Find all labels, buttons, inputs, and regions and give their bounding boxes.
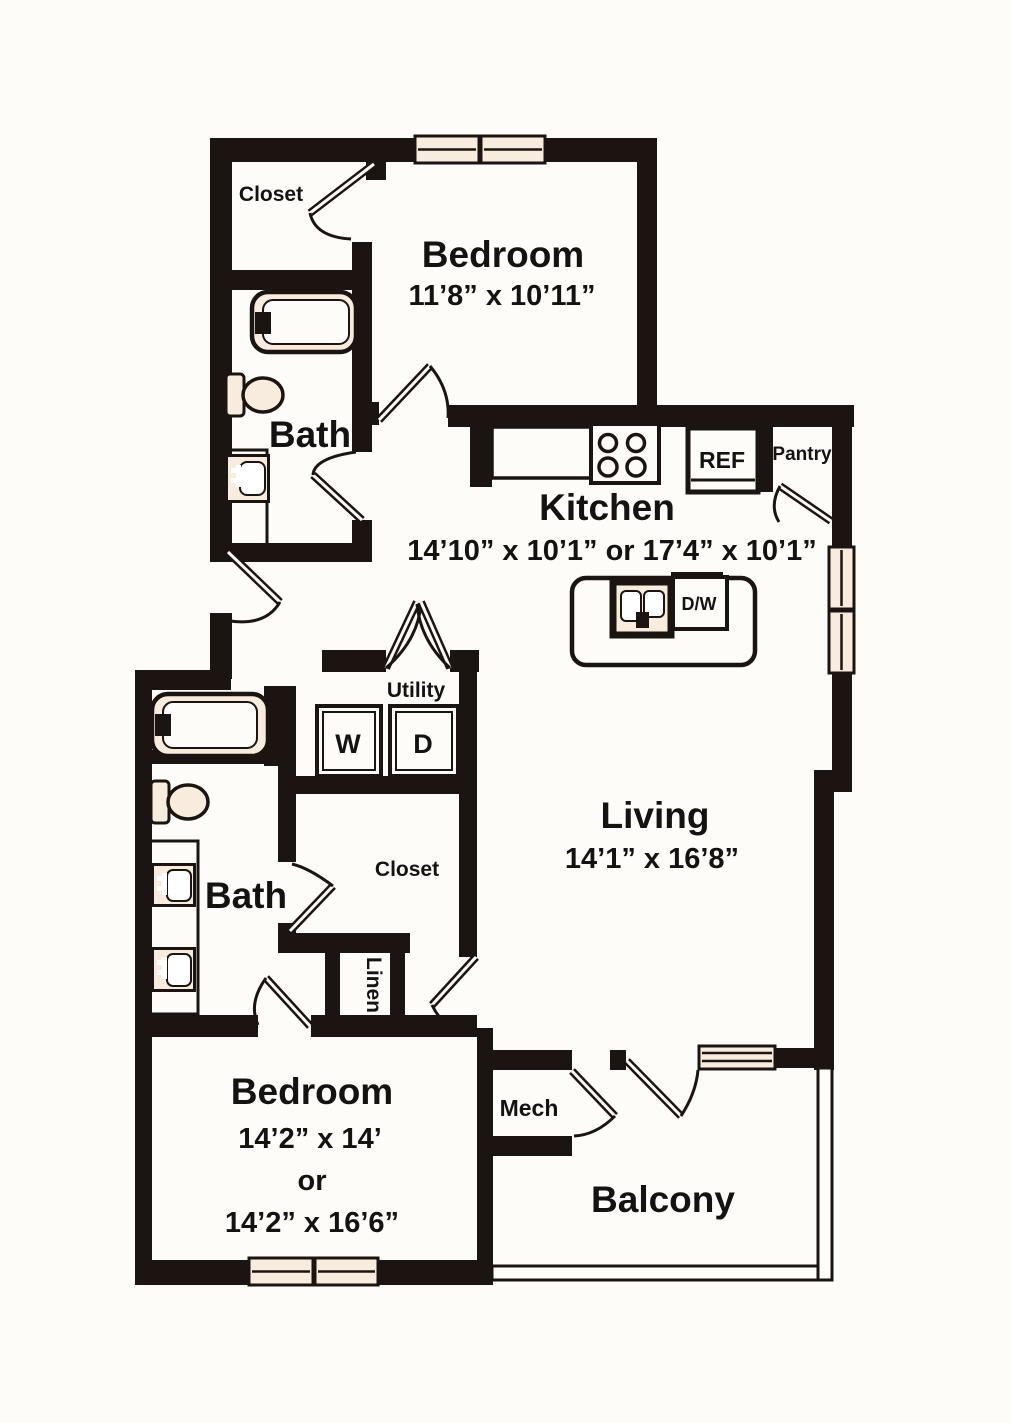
wall-segment [610,1050,626,1070]
wall-segment [210,138,419,162]
balcony-label: Balcony [591,1179,735,1220]
vanity-bottom [151,841,198,1014]
closet-top-door-swing [310,164,374,239]
closet-middle-label: Closet [375,858,439,881]
wall-segment [135,1260,253,1285]
mech-door-swing [572,1071,615,1136]
window-top-2 [481,136,545,163]
island-sink [613,582,671,635]
linen-label: Linen [362,957,385,1013]
window-right-1 [829,547,854,609]
stove [591,424,659,483]
bedroom-bottom-dims-primary: 14’2” x 14’ [238,1123,382,1155]
toilet-bottom [151,781,208,823]
window-bedroom2-1 [249,1258,313,1285]
kitchen-label: Kitchen [539,487,675,528]
utility-label: Utility [387,679,446,702]
wall-segment [459,650,477,957]
bedroom-bottom-dims-alternate: 14’2” x 16’6” [225,1207,399,1239]
balcony-door-swing [627,1061,698,1116]
bath-top-label: Bath [269,414,351,455]
window-top-1 [415,136,479,163]
wall-segment [278,686,296,862]
wall-segment [490,1136,572,1156]
bedroom-top-door-swing [379,366,448,420]
bathtub-top [252,292,356,352]
wall-segment [832,425,852,549]
bath-top-door-swing [313,452,362,520]
wall-segment [210,270,354,290]
window-bedroom2-2 [315,1258,378,1285]
floor-plan-drawing: REF D/W W D [0,0,1011,1423]
washer: W [317,706,381,776]
wall-segment [322,650,386,672]
hall-door-swing [228,552,280,622]
dryer-label: D [413,729,433,759]
wall-segment [135,670,152,1285]
toilet-top [226,374,283,416]
dishwasher-label: D/W [682,594,717,614]
bedroom-top-label: Bedroom [422,234,584,275]
bathtub-bottom [152,694,268,756]
refrigerator-label: REF [699,447,745,473]
wall-segment [152,1015,258,1037]
bedroom-bottom-door-swing [254,978,310,1026]
bedroom-bottom-label: Bedroom [231,1071,393,1112]
pantry-label: Pantry [772,444,832,465]
kitchen-dims: 14’10” x 10’1” or 17’4” x 10’1” [407,535,817,567]
bath-bottom-door-swing [290,864,333,931]
living-dims: 14’1” x 16’8” [565,843,739,875]
utility-double-door-swing [386,602,450,668]
wall-segment [210,613,232,679]
wall-segment [832,670,852,774]
living-label: Living [601,795,710,836]
bedroom-top-dims: 11’8” x 10’11” [408,280,595,312]
wall-segment [637,158,657,427]
wall-segment [814,790,834,1070]
window-right-2 [829,611,854,673]
floor-plan: REF D/W W D [0,0,1011,1423]
wall-segment [770,1048,834,1068]
wall-segment [814,770,852,792]
window-living [699,1046,775,1069]
pantry-door-swing [774,486,831,522]
closet-top-label: Closet [239,183,303,206]
refrigerator: REF [688,428,758,492]
wall-segment [470,425,492,487]
bath-bottom-label: Bath [205,875,287,916]
wall-segment [290,776,462,794]
mech-label: Mech [500,1095,559,1121]
wall-segment [352,402,379,425]
dishwasher: D/W [671,572,727,629]
wall-segment [377,1260,493,1285]
wall-segment [490,1050,572,1070]
washer-label: W [335,729,361,759]
bedroom-bottom-dims-or: or [298,1165,327,1197]
dryer: D [390,706,458,776]
